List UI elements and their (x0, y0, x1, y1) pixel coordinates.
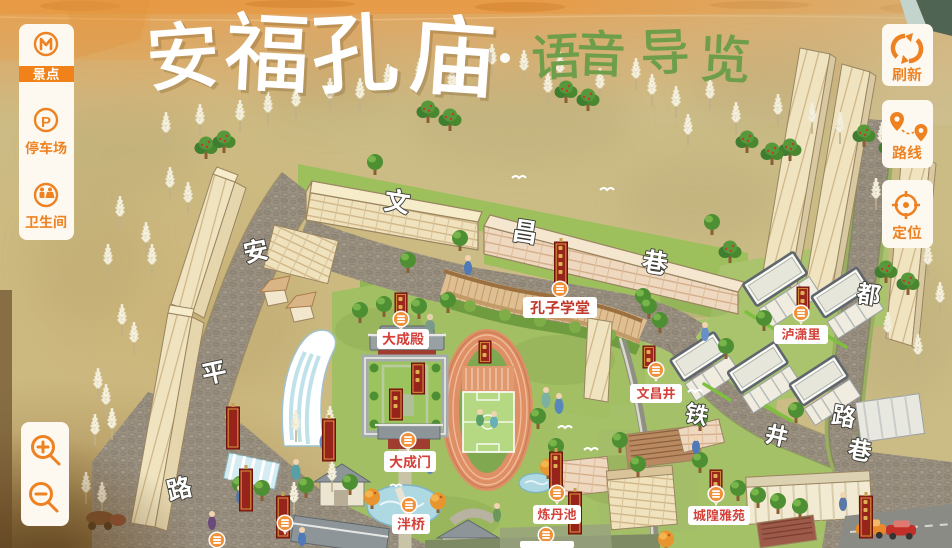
svg-text:P: P (41, 114, 51, 131)
